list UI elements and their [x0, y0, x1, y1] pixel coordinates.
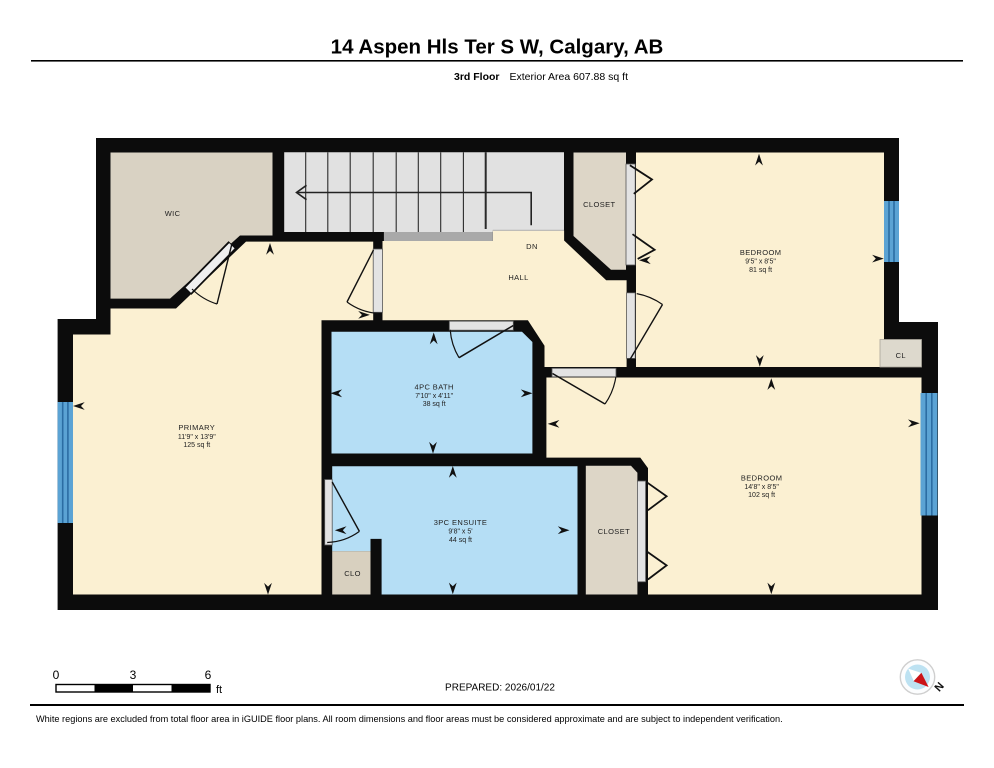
svg-text:44 sq ft: 44 sq ft [449, 537, 472, 544]
svg-text:HALL: HALL [508, 273, 528, 282]
svg-text:3rd FloorExterior Area 607.88: 3rd FloorExterior Area 607.88 sq ft [454, 71, 628, 83]
svg-text:WIC: WIC [165, 209, 181, 218]
svg-text:14 Aspen Hls Ter S W, Calgary,: 14 Aspen Hls Ter S W, Calgary, AB [331, 36, 664, 59]
svg-text:4PC BATH: 4PC BATH [415, 383, 454, 392]
svg-text:CLO: CLO [344, 569, 361, 578]
svg-text:PREPARED: 2026/01/22: PREPARED: 2026/01/22 [445, 683, 555, 694]
svg-text:White regions are excluded fro: White regions are excluded from total fl… [36, 714, 783, 724]
svg-text:PRIMARY: PRIMARY [178, 423, 215, 432]
svg-text:9'8" x 5': 9'8" x 5' [448, 528, 472, 535]
svg-text:9'5" x 8'5": 9'5" x 8'5" [745, 259, 776, 266]
svg-text:11'9" x 13'9": 11'9" x 13'9" [178, 434, 216, 441]
svg-text:3: 3 [130, 668, 137, 682]
svg-text:CL: CL [896, 351, 906, 360]
svg-text:N: N [933, 680, 947, 694]
svg-text:CLOSET: CLOSET [583, 200, 615, 209]
svg-text:3PC ENSUITE: 3PC ENSUITE [434, 518, 488, 527]
svg-text:BEDROOM: BEDROOM [740, 248, 782, 257]
svg-text:6: 6 [205, 668, 212, 682]
svg-text:38 sq ft: 38 sq ft [423, 401, 446, 408]
svg-text:DN: DN [526, 242, 538, 251]
svg-text:ft: ft [216, 684, 222, 696]
svg-text:81 sq ft: 81 sq ft [749, 267, 772, 274]
svg-text:7'10" x 4'11": 7'10" x 4'11" [415, 393, 453, 400]
svg-text:125 sq ft: 125 sq ft [183, 442, 210, 449]
svg-text:CLOSET: CLOSET [598, 527, 630, 536]
svg-text:14'8" x 8'5": 14'8" x 8'5" [744, 484, 779, 491]
svg-text:0: 0 [53, 668, 60, 682]
svg-text:102 sq ft: 102 sq ft [748, 492, 775, 499]
svg-text:BEDROOM: BEDROOM [741, 473, 783, 482]
